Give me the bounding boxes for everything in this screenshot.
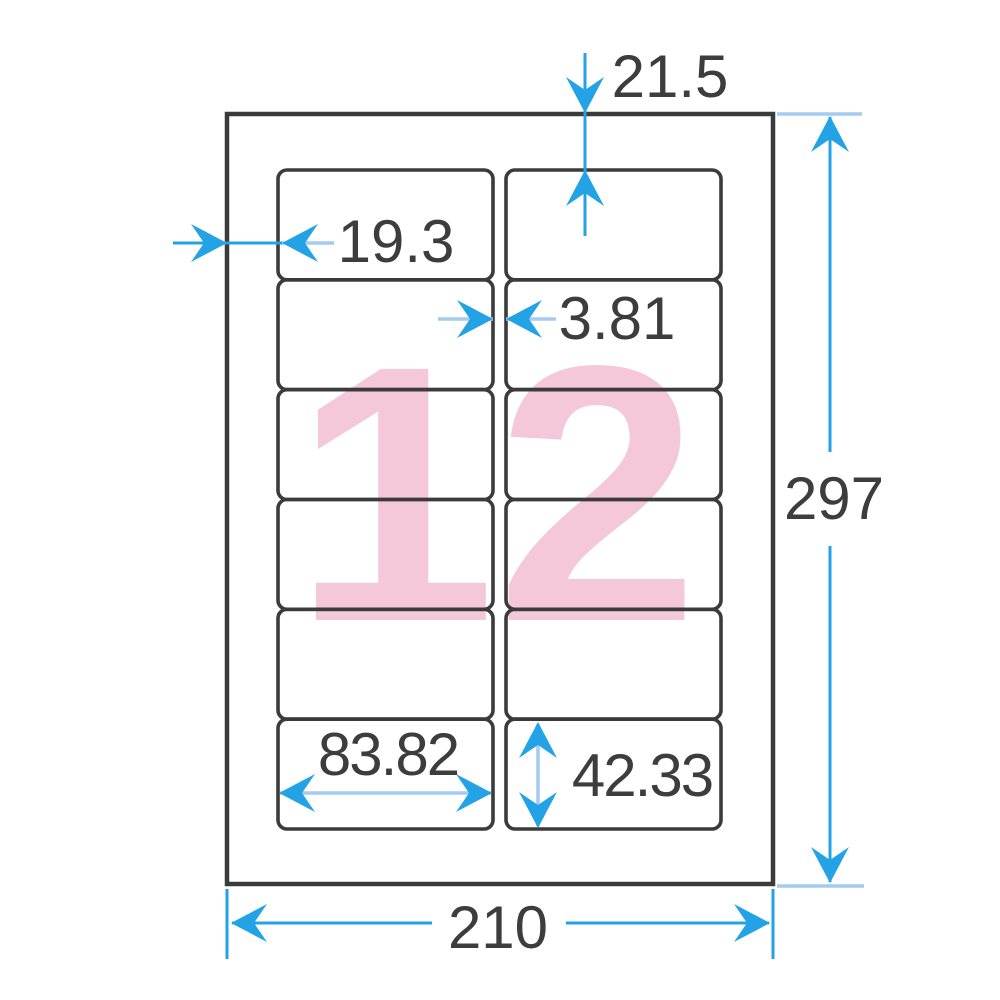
dimension-value-sheet-width: 210 [448, 894, 548, 961]
label-sheet-diagram: 12 21.5 19.3 3.81 [0, 0, 1000, 1000]
dimension-sheet-width: 210 [227, 889, 773, 961]
dimension-value-top-margin: 21.5 [612, 43, 729, 110]
label-count-watermark: 12 [293, 291, 699, 698]
dimension-value-column-gap: 3.81 [559, 285, 676, 352]
dimension-value-left-margin: 19.3 [338, 208, 455, 275]
dimension-value-sheet-height: 297 [784, 465, 884, 532]
diagram-canvas: 12 21.5 19.3 3.81 [0, 0, 1000, 1000]
dimension-value-label-height: 42.33 [572, 742, 712, 809]
dimension-sheet-height: 297 [777, 114, 884, 886]
dimension-value-label-width: 83.82 [318, 721, 458, 788]
